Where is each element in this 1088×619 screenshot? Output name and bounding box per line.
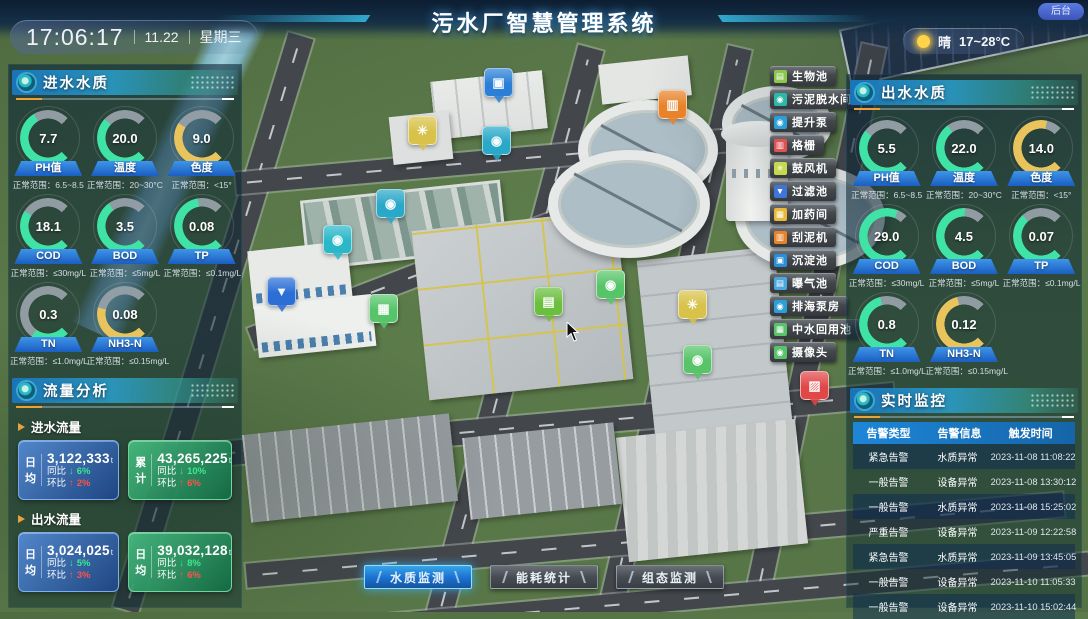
pump-marker-icon: ◉ bbox=[491, 133, 502, 149]
alarm-time: 2023-11-08 13:30:12 bbox=[991, 477, 1075, 487]
pump-marker-icon: ◉ bbox=[332, 232, 343, 248]
flow-card-body: 3,122,333t 同比↓6% 环比↑2% bbox=[47, 451, 113, 490]
alarm-time: 2023-11-09 12:22:58 bbox=[991, 527, 1075, 537]
gauge-dial: 0.08 bbox=[174, 198, 230, 254]
arrow-up-icon: ↑ bbox=[69, 478, 74, 490]
gauge-dial: 0.12 bbox=[936, 296, 992, 352]
gauge-label: COD bbox=[853, 259, 921, 274]
camera-icon: ◉ bbox=[774, 346, 787, 359]
divider bbox=[134, 30, 135, 44]
outlet-gauge-grid: 5.5 PH值 正常范围：6.5~8.5 22.0 温度 正常范围：20~30°… bbox=[846, 114, 1082, 382]
mom-value: 6% bbox=[187, 478, 201, 490]
mom-label: 环比 bbox=[47, 478, 66, 490]
section-icon bbox=[18, 74, 35, 91]
legend-label: 格栅 bbox=[792, 137, 816, 153]
sea-discharge-pump-icon: ◉ bbox=[774, 300, 787, 313]
map-marker[interactable]: ◉ bbox=[482, 126, 511, 155]
gauge-label: 色度 bbox=[168, 161, 236, 176]
section-title: 流量分析 bbox=[43, 380, 109, 401]
gauge-label: 温度 bbox=[91, 161, 159, 176]
footer-tab-bar: 水质监测 能耗统计 组态监测 bbox=[0, 565, 1088, 589]
section-header-outlet-quality: 出水水质 bbox=[850, 80, 1078, 105]
gauge-label: BOD bbox=[930, 259, 998, 274]
gauge-label: TN bbox=[14, 337, 82, 352]
flow-value: 3,024,025 bbox=[47, 543, 110, 558]
legend-item[interactable]: ▤ 曝气池 bbox=[770, 273, 836, 293]
alarm-info: 水质异常 bbox=[924, 449, 991, 464]
gauge-dial: 18.1 bbox=[20, 198, 76, 254]
footer-tab-label: 组态监测 bbox=[642, 569, 698, 586]
gauge-value: 0.3 bbox=[20, 286, 76, 342]
parking-lot bbox=[242, 413, 458, 522]
legend-label: 中水回用池 bbox=[792, 321, 852, 337]
gauge-dial: 29.0 bbox=[859, 208, 915, 264]
legend-label: 排海泵房 bbox=[792, 298, 840, 314]
flow-card: 累计 43,265,225t 同比↓10% 环比↑6% bbox=[128, 440, 232, 500]
alarm-info: 设备异常 bbox=[924, 474, 991, 489]
sludge-scraper-icon: ▥ bbox=[774, 231, 787, 244]
gauge-dial: 0.07 bbox=[1013, 208, 1069, 264]
gauge-normal-range: 正常范围：<15° bbox=[1003, 189, 1080, 201]
map-marker[interactable]: ▼ bbox=[267, 277, 296, 306]
gauge-value: 18.1 bbox=[20, 198, 76, 254]
gauge-normal-range: 正常范围：≤30mg/L bbox=[848, 277, 925, 289]
gauge-normal-range: 正常范围：≤0.1mg/L bbox=[1003, 277, 1080, 289]
section-icon bbox=[856, 84, 873, 101]
gauge-label: 温度 bbox=[930, 171, 998, 186]
alarm-row[interactable]: 一般告警 水质异常 2023-11-08 15:25:02 bbox=[853, 494, 1075, 519]
section-underline bbox=[16, 98, 234, 100]
flow-card-tag: 累计 bbox=[134, 454, 152, 486]
scraper-marker-icon: ▥ bbox=[666, 97, 678, 113]
alarm-time: 2023-11-09 13:45:05 bbox=[991, 552, 1075, 562]
gauge-label: PH值 bbox=[853, 171, 921, 186]
gauge: 3.5 BOD 正常范围：≤5mg/L bbox=[87, 196, 164, 279]
parking-lot bbox=[462, 422, 622, 519]
alarm-time: 2023-11-08 15:25:02 bbox=[991, 502, 1075, 512]
gauge: 7.7 PH值 正常范围：6.5~8.5 bbox=[10, 108, 87, 191]
gauge-value: 0.8 bbox=[859, 296, 915, 352]
map-marker[interactable]: ◉ bbox=[683, 345, 712, 374]
inlet-flow-label: 进水流量 bbox=[8, 412, 242, 439]
legend-item[interactable]: ▣ 沉淀池 bbox=[770, 250, 836, 270]
map-marker[interactable]: ✳ bbox=[408, 116, 437, 145]
gauge-label: NH3-N bbox=[930, 347, 998, 362]
flow-card-tag: 日均 bbox=[24, 454, 42, 486]
gauge: 0.08 NH3-N 正常范围：≤0.15mg/L bbox=[87, 284, 164, 367]
arrow-up-icon: ↑ bbox=[179, 478, 184, 490]
gauge-dial: 3.5 bbox=[97, 198, 153, 254]
gauge: 0.8 TN 正常范围：≤1.0mg/L bbox=[848, 294, 925, 377]
gauge-dial: 0.8 bbox=[859, 296, 915, 352]
alarm-table-body: 紧急告警 水质异常 2023-11-08 11:08:22 一般告警 设备异常 … bbox=[853, 444, 1075, 619]
gauge-label: TN bbox=[853, 347, 921, 362]
yoy-label: 同比 bbox=[47, 466, 66, 478]
weather-condition: 晴 bbox=[938, 32, 951, 51]
gauge-normal-range: 正常范围：<15° bbox=[163, 179, 240, 191]
gauge: 4.5 BOD 正常范围：≤5mg/L bbox=[925, 206, 1002, 289]
gauge-value: 7.7 bbox=[20, 110, 76, 166]
legend-label: 沉淀池 bbox=[792, 252, 828, 268]
sun-icon bbox=[917, 35, 930, 48]
arrow-down-icon: ↓ bbox=[69, 466, 74, 478]
legend-item[interactable]: ◉ 提升泵 bbox=[770, 112, 836, 132]
legend-item[interactable]: ✳ 鼓风机 bbox=[770, 158, 836, 178]
footer-tab-label: 水质监测 bbox=[390, 569, 446, 586]
divider bbox=[189, 30, 190, 44]
alarm-column-header: 告警类型 bbox=[853, 425, 924, 441]
gauge-dial: 5.5 bbox=[859, 120, 915, 176]
gauge-normal-range: 正常范围：20~30°C bbox=[87, 179, 164, 191]
alarm-row[interactable]: 严重告警 设备异常 2023-11-09 12:22:58 bbox=[853, 519, 1075, 544]
gauge-label: NH3-N bbox=[91, 337, 159, 352]
weekday-display: 星期三 bbox=[200, 27, 242, 47]
map-marker[interactable]: ✳ bbox=[678, 290, 707, 319]
gauge-normal-range: 正常范围：≤0.15mg/L bbox=[925, 365, 1002, 377]
warehouse bbox=[616, 419, 808, 562]
gauge-label: PH值 bbox=[14, 161, 82, 176]
section-icon bbox=[856, 392, 873, 409]
alarm-column-header: 告警信息 bbox=[924, 425, 995, 441]
alarm-table: 告警类型告警信息触发时间 紧急告警 水质异常 2023-11-08 11:08:… bbox=[853, 422, 1075, 619]
camera-marker-icon: ◉ bbox=[605, 277, 616, 293]
gauge-normal-range: 正常范围：≤30mg/L bbox=[10, 267, 87, 279]
gauge-normal-range: 正常范围：6.5~8.5 bbox=[10, 179, 87, 191]
map-marker[interactable]: ▣ bbox=[484, 68, 513, 97]
gauge: 18.1 COD 正常范围：≤30mg/L bbox=[10, 196, 87, 279]
gauge-label: TP bbox=[168, 249, 236, 264]
section-icon bbox=[18, 382, 35, 399]
gauge-dial: 0.08 bbox=[97, 286, 153, 342]
arrow-down-icon: ↓ bbox=[179, 466, 184, 478]
mom-label: 环比 bbox=[157, 478, 176, 490]
lift-pump-icon: ◉ bbox=[774, 116, 787, 129]
legend-item[interactable]: ▦ 加药间 bbox=[770, 204, 836, 224]
yoy-value: 6% bbox=[77, 466, 91, 478]
gauge: 5.5 PH值 正常范围：6.5~8.5 bbox=[848, 118, 925, 201]
gauge-value: 9.0 bbox=[174, 110, 230, 166]
gauge-normal-range: 正常范围：≤5mg/L bbox=[925, 277, 1002, 289]
flow-unit: t bbox=[111, 456, 114, 465]
flow-value: 43,265,225 bbox=[157, 451, 228, 466]
alarm-column-header: 触发时间 bbox=[995, 425, 1066, 441]
legend-label: 污泥脱水间 bbox=[792, 91, 852, 107]
legend-label: 鼓风机 bbox=[792, 160, 828, 176]
map-marker[interactable]: ▥ bbox=[658, 90, 687, 119]
pump-marker-icon: ◉ bbox=[385, 196, 396, 212]
legend-item[interactable]: ▤ 生物池 bbox=[770, 66, 836, 86]
alarm-type: 严重告警 bbox=[853, 524, 924, 539]
gauge: 20.0 温度 正常范围：20~30°C bbox=[87, 108, 164, 191]
legend-label: 曝气池 bbox=[792, 275, 828, 291]
alarm-row[interactable]: 一般告警 设备异常 2023-11-08 13:30:12 bbox=[853, 469, 1075, 494]
backend-button[interactable]: 后台 bbox=[1038, 3, 1084, 20]
alarm-type: 一般告警 bbox=[853, 499, 924, 514]
flow-card: 日均 3,122,333t 同比↓6% 环比↑2% bbox=[18, 440, 119, 500]
section-underline bbox=[16, 406, 234, 408]
gauge-value: 22.0 bbox=[936, 120, 992, 176]
section-underline bbox=[854, 416, 1074, 418]
gauge-value: 0.08 bbox=[97, 286, 153, 342]
alarm-row[interactable]: 紧急告警 水质异常 2023-11-08 11:08:22 bbox=[853, 444, 1075, 469]
gauge-label: 色度 bbox=[1007, 171, 1075, 186]
gauge-dial: 22.0 bbox=[936, 120, 992, 176]
map-marker[interactable]: ◉ bbox=[323, 225, 352, 254]
alarm-info: 水质异常 bbox=[924, 499, 991, 514]
footer-tab[interactable]: 能耗统计 bbox=[490, 565, 598, 589]
gauge-value: 4.5 bbox=[936, 208, 992, 264]
alarm-table-header: 告警类型告警信息触发时间 bbox=[853, 422, 1075, 444]
mouse-cursor bbox=[566, 322, 580, 342]
gauge-value: 0.07 bbox=[1013, 208, 1069, 264]
legend-label: 过滤池 bbox=[792, 183, 828, 199]
legend-item[interactable]: ▼ 过滤池 bbox=[770, 181, 836, 201]
blower-icon: ✳ bbox=[774, 162, 787, 175]
footer-tab[interactable]: 水质监测 bbox=[364, 565, 472, 589]
map-marker[interactable]: ◉ bbox=[596, 270, 625, 299]
yoy-label: 同比 bbox=[157, 466, 176, 478]
flow-unit: t bbox=[229, 548, 232, 557]
dosing-room-icon: ▦ bbox=[774, 208, 787, 221]
alarm-info: 水质异常 bbox=[924, 549, 991, 564]
bio-pool-icon: ▤ bbox=[774, 70, 787, 83]
gauge-value: 29.0 bbox=[859, 208, 915, 264]
gauge-dial: 0.3 bbox=[20, 286, 76, 342]
camera-marker-icon: ◉ bbox=[692, 352, 703, 368]
alarm-time: 2023-11-10 15:02:44 bbox=[991, 602, 1075, 612]
inlet-gauge-grid: 7.7 PH值 正常范围：6.5~8.5 20.0 温度 正常范围：20~30°… bbox=[8, 104, 242, 372]
gauge-label: TP bbox=[1007, 259, 1075, 274]
gauge-dial: 4.5 bbox=[936, 208, 992, 264]
footer-tab[interactable]: 组态监测 bbox=[616, 565, 724, 589]
gauge-normal-range: 正常范围：≤1.0mg/L bbox=[848, 365, 925, 377]
outlet-panel: 出水水质 5.5 PH值 正常范围：6.5~8.5 22.0 温度 正常范围：2… bbox=[846, 74, 1082, 608]
map-marker[interactable]: ▤ bbox=[534, 287, 563, 316]
gauge-value: 14.0 bbox=[1013, 120, 1069, 176]
legend-item[interactable]: ◉ 排海泵房 bbox=[770, 296, 848, 316]
aeration-pool-icon: ▤ bbox=[774, 277, 787, 290]
gauge: 14.0 色度 正常范围：<15° bbox=[1003, 118, 1080, 201]
flow-card-body: 43,265,225t 同比↓10% 环比↑6% bbox=[157, 451, 231, 490]
gauge-normal-range: 正常范围：20~30°C bbox=[925, 189, 1002, 201]
flow-value: 39,032,128 bbox=[157, 543, 228, 558]
alarm-type: 紧急告警 bbox=[853, 549, 924, 564]
sludge-dewatering-icon: ◉ bbox=[774, 93, 787, 106]
legend-label: 生物池 bbox=[792, 68, 828, 84]
legend-item[interactable]: ◉ 摄像头 bbox=[770, 342, 836, 362]
gauge-label: BOD bbox=[91, 249, 159, 264]
legend-label: 刮泥机 bbox=[792, 229, 828, 245]
clarifier-tank bbox=[548, 150, 710, 258]
section-header-flow-analysis: 流量分析 bbox=[12, 378, 238, 403]
gauge: 0.07 TP 正常范围：≤0.1mg/L bbox=[1003, 206, 1080, 289]
bar-screen-icon: ▥ bbox=[774, 139, 787, 152]
section-header-realtime-monitor: 实时监控 bbox=[850, 388, 1078, 413]
legend-item[interactable]: ▥ 格栅 bbox=[770, 135, 824, 155]
gauge-normal-range: 正常范围：≤1.0mg/L bbox=[10, 355, 87, 367]
gauge-normal-range: 正常范围：6.5~8.5 bbox=[848, 189, 925, 201]
gauge-normal-range: 正常范围：≤5mg/L bbox=[87, 267, 164, 279]
alarm-type: 一般告警 bbox=[853, 474, 924, 489]
gauge-normal-range: 正常范围：≤0.1mg/L bbox=[163, 267, 240, 279]
filter-marker-icon: ▼ bbox=[275, 284, 288, 299]
legend-item[interactable]: ▥ 刮泥机 bbox=[770, 227, 836, 247]
time-display: 17:06:17 bbox=[26, 24, 124, 51]
legend-label: 摄像头 bbox=[792, 344, 828, 360]
flow-value: 3,122,333 bbox=[47, 451, 110, 466]
blower-marker-icon: ✳ bbox=[417, 123, 428, 139]
filter-pool-icon: ▼ bbox=[774, 185, 787, 198]
gauge-value: 0.08 bbox=[174, 198, 230, 254]
weather-widget: 晴 17~28°C bbox=[903, 28, 1024, 54]
bio-pool-marker-icon: ▤ bbox=[542, 294, 554, 310]
clock-widget: 17:06:17 11.22 星期三 bbox=[10, 20, 258, 54]
flow-unit: t bbox=[111, 548, 114, 557]
map-marker[interactable]: ◉ bbox=[376, 189, 405, 218]
alarm-type: 紧急告警 bbox=[853, 449, 924, 464]
bar-screen-marker-icon: ▨ bbox=[808, 378, 820, 394]
gauge-dial: 9.0 bbox=[174, 110, 230, 166]
gauge-value: 0.12 bbox=[936, 296, 992, 352]
yoy-value: 10% bbox=[187, 466, 206, 478]
gauge: 0.08 TP 正常范围：≤0.1mg/L bbox=[163, 196, 240, 279]
alarm-row[interactable]: 一般告警 设备异常 2023-11-10 15:02:44 bbox=[853, 594, 1075, 619]
legend-label: 加药间 bbox=[792, 206, 828, 222]
gauge-dial: 7.7 bbox=[20, 110, 76, 166]
gauge-dial: 20.0 bbox=[97, 110, 153, 166]
legend-label: 提升泵 bbox=[792, 114, 828, 130]
mom-value: 2% bbox=[77, 478, 91, 490]
temperature-range: 17~28°C bbox=[959, 34, 1010, 49]
outlet-flow-label: 出水流量 bbox=[8, 504, 242, 531]
gauge-value: 5.5 bbox=[859, 120, 915, 176]
flow-unit: t bbox=[229, 456, 232, 465]
inlet-panel: 进水水质 7.7 PH值 正常范围：6.5~8.5 20.0 温度 正常范围：2… bbox=[8, 64, 242, 608]
section-title: 实时监控 bbox=[881, 390, 947, 411]
map-marker[interactable]: ▦ bbox=[369, 294, 398, 323]
alarm-time: 2023-11-08 11:08:22 bbox=[991, 452, 1075, 462]
section-title: 出水水质 bbox=[881, 82, 947, 103]
footer-tab-label: 能耗统计 bbox=[516, 569, 572, 586]
sedimentation-pool-icon: ▣ bbox=[774, 254, 787, 267]
sedimentation-marker-icon: ▣ bbox=[492, 75, 504, 91]
gauge-value: 3.5 bbox=[97, 198, 153, 254]
alarm-info: 设备异常 bbox=[924, 524, 991, 539]
gauge: 0.12 NH3-N 正常范围：≤0.15mg/L bbox=[925, 294, 1002, 377]
reuse-pool-marker-icon: ▦ bbox=[377, 301, 389, 317]
water-reuse-pool-icon: ▦ bbox=[774, 323, 787, 336]
gauge-value: 20.0 bbox=[97, 110, 153, 166]
map-marker[interactable]: ▨ bbox=[800, 371, 829, 400]
gauge: 22.0 温度 正常范围：20~30°C bbox=[925, 118, 1002, 201]
gauge-dial: 14.0 bbox=[1013, 120, 1069, 176]
gauge: 29.0 COD 正常范围：≤30mg/L bbox=[848, 206, 925, 289]
section-header-inlet-quality: 进水水质 bbox=[12, 70, 238, 95]
section-underline bbox=[854, 108, 1074, 110]
gauge-normal-range: 正常范围：≤0.15mg/L bbox=[87, 355, 164, 367]
date-display: 11.22 bbox=[145, 29, 179, 45]
blower-marker-icon: ✳ bbox=[687, 297, 698, 313]
section-title: 进水水质 bbox=[43, 72, 109, 93]
inlet-flow-cards: 日均 3,122,333t 同比↓6% 环比↑2% 累计 43,265,225t… bbox=[8, 439, 242, 504]
gauge: 0.3 TN 正常范围：≤1.0mg/L bbox=[10, 284, 87, 367]
gauge-label: COD bbox=[14, 249, 82, 264]
gauge: 9.0 色度 正常范围：<15° bbox=[163, 108, 240, 191]
